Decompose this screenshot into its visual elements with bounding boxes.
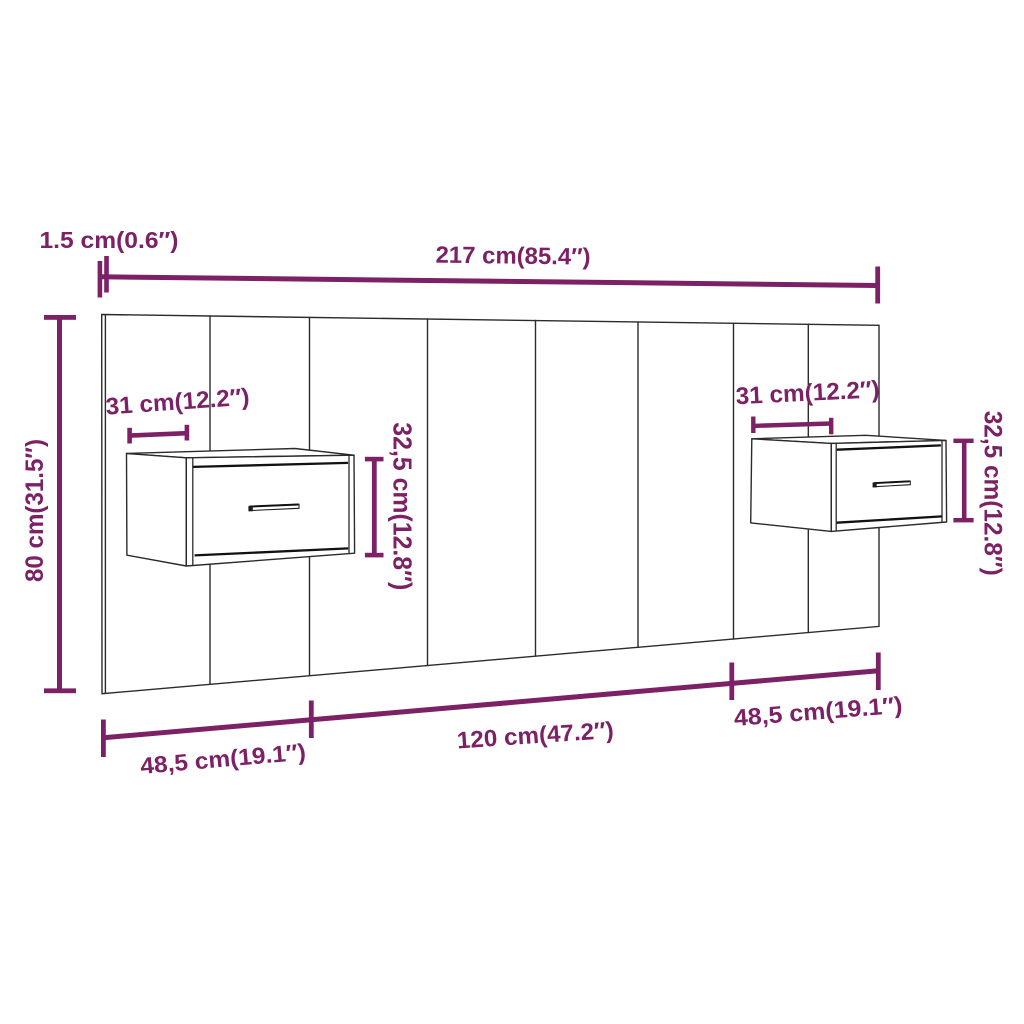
svg-text:32,5 cm(12.8″): 32,5 cm(12.8″): [979, 411, 1007, 576]
svg-text:217 cm(85.4″): 217 cm(85.4″): [435, 243, 590, 271]
svg-text:80 cm(31.5″): 80 cm(31.5″): [22, 439, 49, 582]
svg-text:32,5 cm(12.8″): 32,5 cm(12.8″): [388, 422, 418, 590]
svg-text:1.5 cm(0.6″): 1.5 cm(0.6″): [40, 227, 179, 253]
